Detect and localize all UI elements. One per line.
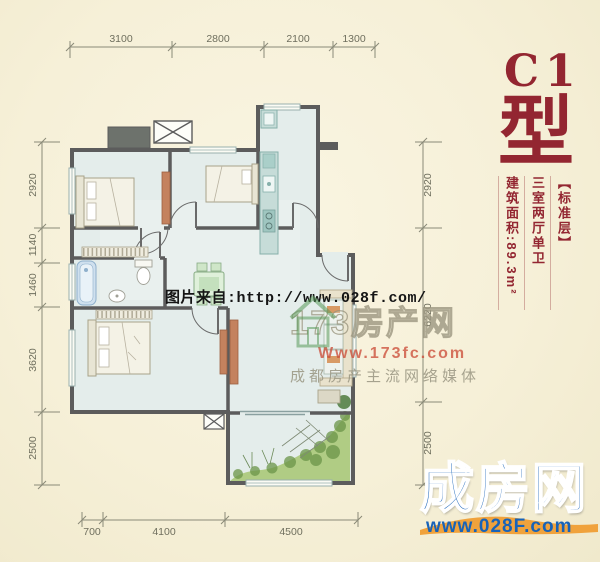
dim-top-3: 2100 <box>286 33 310 45</box>
dim-bottom-2: 4100 <box>152 526 176 538</box>
unit-specs: 建筑面积:89.3m² 三室两厅单卫 【标准层】 <box>492 176 598 310</box>
dimension-bottom <box>78 512 362 527</box>
unit-layout: 三室两厅单卫 <box>524 176 550 310</box>
dim-left-3: 1460 <box>27 273 39 297</box>
wall-block <box>108 127 150 148</box>
wardrobe-icon <box>162 172 170 224</box>
dim-bottom-3: 4500 <box>279 526 303 538</box>
dim-top-4: 1300 <box>342 33 366 45</box>
hall-closet <box>82 247 148 257</box>
bathtub-icon <box>77 261 96 305</box>
unit-area: 建筑面积:89.3m² <box>498 176 524 310</box>
kitchen-sink-icon <box>263 176 275 192</box>
kitchen-cabinet <box>263 154 275 168</box>
sink-icon <box>109 290 125 302</box>
title-block: C1 型 建筑面积:89.3m² 三室两厅单卫 【标准层】 <box>492 50 598 310</box>
dim-left-2: 1140 <box>27 234 39 257</box>
single-bed-icon <box>206 164 258 204</box>
dim-left-4: 3620 <box>27 348 39 372</box>
master-bed-icon <box>88 320 150 376</box>
tv-cabinet-icon <box>230 320 238 384</box>
site-logo-url: www.028F.com <box>420 516 598 538</box>
unit-type-char: 型 <box>492 96 598 168</box>
kitchen-counter <box>260 152 278 254</box>
dim-bottom-1: 700 <box>83 526 101 538</box>
dresser-icon <box>220 330 227 374</box>
dim-right-3: 2500 <box>422 431 434 455</box>
dim-top-1: 3100 <box>109 33 133 45</box>
site-logo-name: 成房网 <box>420 462 598 516</box>
site-logo: 成房网 www.028F.com <box>420 462 598 560</box>
master-wardrobe <box>96 310 152 319</box>
dim-top-2: 2800 <box>206 33 230 45</box>
unit-floor-tag: 【标准层】 <box>550 176 576 310</box>
stove-icon <box>263 210 275 232</box>
coffee-table-icon <box>318 390 340 403</box>
floorplan-page: 3100 2800 2100 1300 2920 1140 1460 3620 … <box>0 0 600 562</box>
double-bed-icon <box>76 176 134 228</box>
balcony-basin-icon <box>261 110 277 128</box>
shaft-x-icon <box>154 121 192 143</box>
dim-left-1: 2920 <box>27 173 39 197</box>
portal-slogan: 成都房产主流网络媒体 <box>290 365 490 386</box>
dim-right-1: 2920 <box>422 173 434 197</box>
house-icon <box>286 292 340 354</box>
dim-left-5: 2500 <box>27 436 39 460</box>
shaft-x-icon-2 <box>204 414 224 429</box>
portal-watermark: 173房产网 Www.173fc.com 成都房产主流网络媒体 <box>290 296 490 386</box>
